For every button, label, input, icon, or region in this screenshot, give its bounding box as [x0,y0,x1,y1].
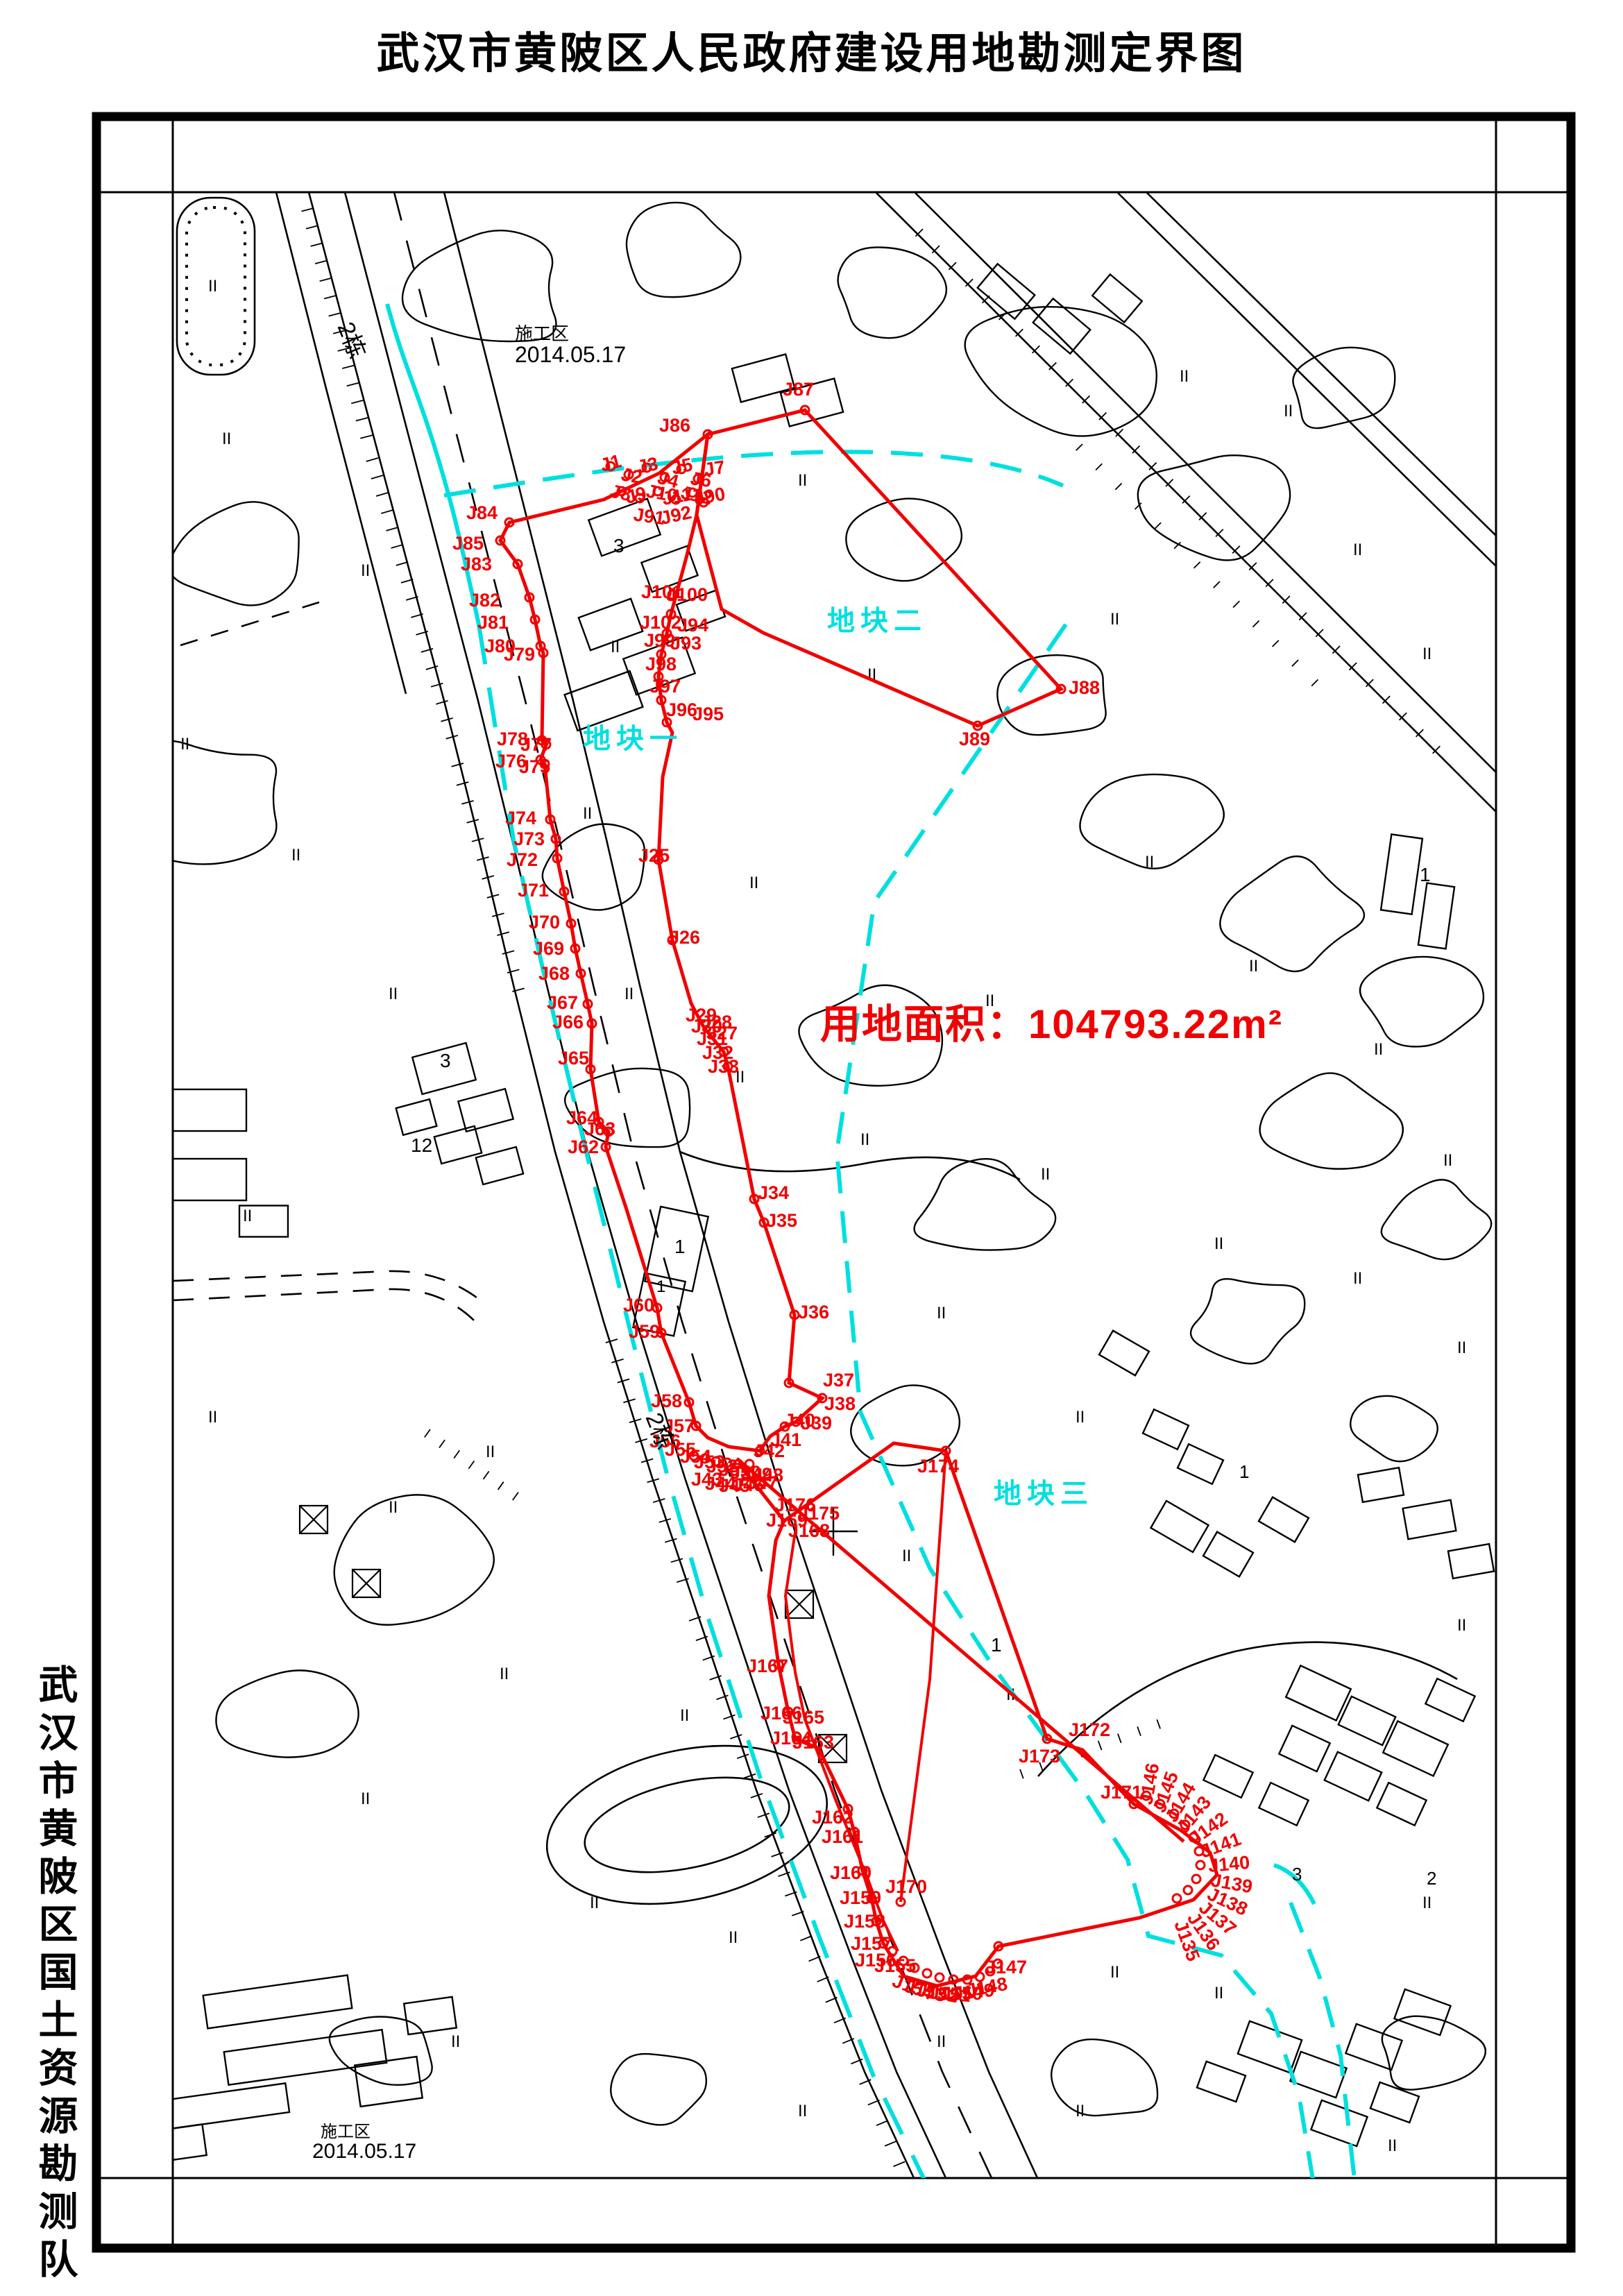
boundary-point-label: J68 [538,963,570,984]
ne-road-2-edge-2 [1146,192,1496,536]
svg-text:II: II [243,1207,252,1225]
svg-text:II: II [361,1789,370,1808]
base-map-annotation: 3 [1292,1864,1302,1885]
boundary-point-label: J100 [666,584,708,605]
svg-text:II: II [590,1894,599,1912]
boundary-point-label: J87 [783,379,814,400]
boundary-point-label: J147 [985,1957,1027,1978]
svg-text:II: II [1353,541,1362,559]
boundary-point-label: J70 [529,912,560,933]
boundary-point-label: J7 [703,457,726,480]
svg-text:II: II [180,735,189,754]
svg-text:II: II [486,1443,495,1461]
boundary-point-label: J93 [670,633,702,654]
village-lane [680,1152,1020,1180]
svg-text:II: II [389,985,398,1003]
boundary-point-label: J79 [504,644,535,665]
boundary-dashed-c [1291,1903,1354,2179]
svg-text:II: II [389,1498,398,1517]
boundary-point-label: J72 [507,849,538,870]
boundary-point-label: J167 [747,1656,788,1676]
svg-text:II: II [291,846,300,865]
boundary-point-label: J74 [505,808,536,828]
boundary-point-label: J43 [691,1469,722,1490]
parcel-name-label: 地块二 [827,606,927,636]
svg-text:II: II [361,561,370,580]
boundary-point-label: J174 [917,1456,959,1477]
boundary-point-label: J37 [823,1370,854,1391]
svg-text:II: II [902,1547,911,1565]
land-area-annotation: 用地面积：104793.22m² [820,1002,1283,1047]
boundary-point-label: J85 [452,533,484,554]
boundary-point-label: J36 [798,1302,829,1323]
boundary-point-label: J84 [466,502,498,523]
svg-text:II: II [1457,1616,1466,1635]
boundary-point-label: J81 [477,612,509,633]
field-track [173,1271,486,1304]
survey-map-page: { "page": { "title": "武汉市黄陂区人民政府建设用地勘测定界… [0,0,1623,2296]
svg-text:II: II [798,2102,807,2120]
svg-text:II: II [937,1304,946,1323]
boundary-point-label: J170 [885,1876,927,1897]
svg-text:II: II [1388,2136,1397,2155]
boundary-point-label: J162 [812,1807,853,1828]
svg-text:II: II [749,874,758,892]
parcel-name-label: 地块一 [583,724,683,754]
base-map-annotation: 施工区 [321,2123,371,2141]
boundary-point-label: J59 [629,1321,660,1342]
svg-text:II: II [860,1130,869,1149]
svg-text:II: II [500,1665,509,1683]
svg-text:II: II [1214,1234,1223,1253]
base-map-annotation: 1 [656,1277,665,1296]
svg-text:II: II [1353,1269,1362,1288]
boundary-point-label: J58 [651,1391,682,1411]
base-map-annotation: 2014.05.17 [515,342,626,367]
boundary-point-label: J60 [623,1295,654,1316]
red-boundary-lines [500,410,1217,1986]
boundary-point-label: J73 [513,828,545,849]
map-text-labels: J86J87J88J89J84J85J83J82J81J80J79J78J77J… [312,318,1436,2163]
field-track-3 [180,602,319,645]
boundary-point-label: J161 [822,1826,863,1847]
svg-text:II: II [222,430,231,448]
boundary-point-label: J26 [669,927,700,948]
boundary-point-label: J39 [801,1413,832,1434]
boundary-point-label: J38 [824,1393,856,1414]
boundary-point-label: J158 [844,1911,885,1932]
boundary-point-label: J165 [783,1707,824,1728]
boundary-point-label: J66 [552,1012,584,1032]
svg-text:II: II [208,1408,217,1427]
base-map-annotation: 1 [991,1634,1002,1656]
base-map-annotation: 施工区 [515,323,569,344]
boundary-point-label: J172 [1069,1719,1110,1740]
base-map-annotation: 1 [674,1236,686,1257]
main-road-east-edge [444,192,1038,2179]
svg-text:II: II [611,638,620,656]
boundary-dashed-b [837,624,1313,2179]
svg-text:II: II [583,804,592,823]
base-map-annotation: 3 [613,535,624,556]
boundary-point-label: J3 [636,453,660,477]
svg-text:II: II [451,2032,460,2051]
boundary-point-label: J69 [533,938,564,959]
svg-text:II: II [1041,1165,1050,1184]
ne-road-edge-1 [876,192,1496,812]
svg-text:II: II [1457,1338,1466,1357]
base-map-annotation: 2 [1427,1868,1436,1889]
base-map-annotation: 1 [1420,864,1431,885]
boundary-point-label: J88 [1069,677,1100,698]
svg-text:II: II [208,277,217,296]
boundary-point-label: J95 [692,704,724,724]
ne-road-2-edge-1 [1117,192,1496,566]
boundary-point-label: J163 [792,1732,834,1753]
base-map-annotation: 3 [440,1050,451,1071]
svg-text:II: II [729,1928,738,1947]
main-road-west-outer [276,192,406,694]
base-map-annotation: 2栋 [332,318,371,362]
boundary-point-label: J83 [461,554,492,575]
svg-text:II: II [1180,367,1189,386]
boundary-point-label: J168 [788,1520,830,1541]
stream-line-solid [387,304,479,624]
boundary-point-label: J159 [840,1887,881,1908]
boundary-point-label: J67 [547,992,578,1013]
svg-text:II: II [1076,2102,1085,2120]
svg-text:II: II [680,1706,689,1725]
boundary-point-label: J98 [645,654,677,674]
svg-text:II: II [1110,1963,1119,1982]
boundary-point-label: J82 [469,590,500,611]
boundary-point-label: J86 [659,415,690,436]
boundary-point-label: J173 [1019,1746,1060,1767]
map-frame [96,117,1571,2248]
boundary-point-label: J160 [830,1862,872,1883]
svg-text:II: II [1422,1894,1431,1912]
svg-text:II: II [1214,1984,1223,2002]
parcel-boundary-block3 [769,1443,1217,1986]
boundary-point-label: J25 [638,845,670,866]
boundary-point-label: J89 [959,729,990,749]
boundary-point-markers [496,406,1205,1984]
survey-map-canvas: IIIIIIIIIIIIIIIIIIIIIIIIIIIIIIIIIIIIIIII… [0,0,1623,2296]
boundary-point-label: J90 [692,484,727,509]
village-lane-2 [1038,1642,1457,1776]
svg-text:II: II [1422,645,1431,663]
boundary-point-label: J41 [770,1429,801,1450]
svg-text:II: II [1249,957,1258,976]
svg-text:II: II [1443,1151,1452,1170]
field-track-2 [173,1289,479,1325]
boundary-point-label: J34 [758,1182,789,1203]
boundary-dashed-a [444,452,1063,495]
svg-text:II: II [937,2032,946,2051]
base-map-annotation: 2014.05.17 [312,2140,416,2163]
svg-text:II: II [1145,853,1154,871]
svg-text:II: II [1076,1408,1085,1427]
svg-text:II: II [1110,610,1119,629]
svg-text:II: II [798,471,807,490]
boundary-point-label: J1 [598,450,624,476]
boundary-point-label: J97 [649,676,681,697]
svg-text:II: II [1284,402,1293,420]
boundary-point-label: J62 [568,1137,599,1157]
parcel-boundary-block2 [697,410,1061,726]
boundary-point-label: J71 [518,880,549,901]
stadium-oval [532,1722,842,1928]
parcel-name-label: 地块三 [994,1479,1094,1509]
boundary-point-label: J65 [558,1048,589,1069]
boundary-point-label: J27 [706,1023,738,1044]
svg-text:II: II [1374,1040,1383,1059]
base-map-annotation: 12 [411,1134,432,1156]
boundary-point-label: J75 [519,756,550,777]
boundary-point-label: J35 [766,1210,797,1231]
svg-text:II: II [624,985,634,1003]
base-map-annotation: 1 [1239,1461,1249,1482]
